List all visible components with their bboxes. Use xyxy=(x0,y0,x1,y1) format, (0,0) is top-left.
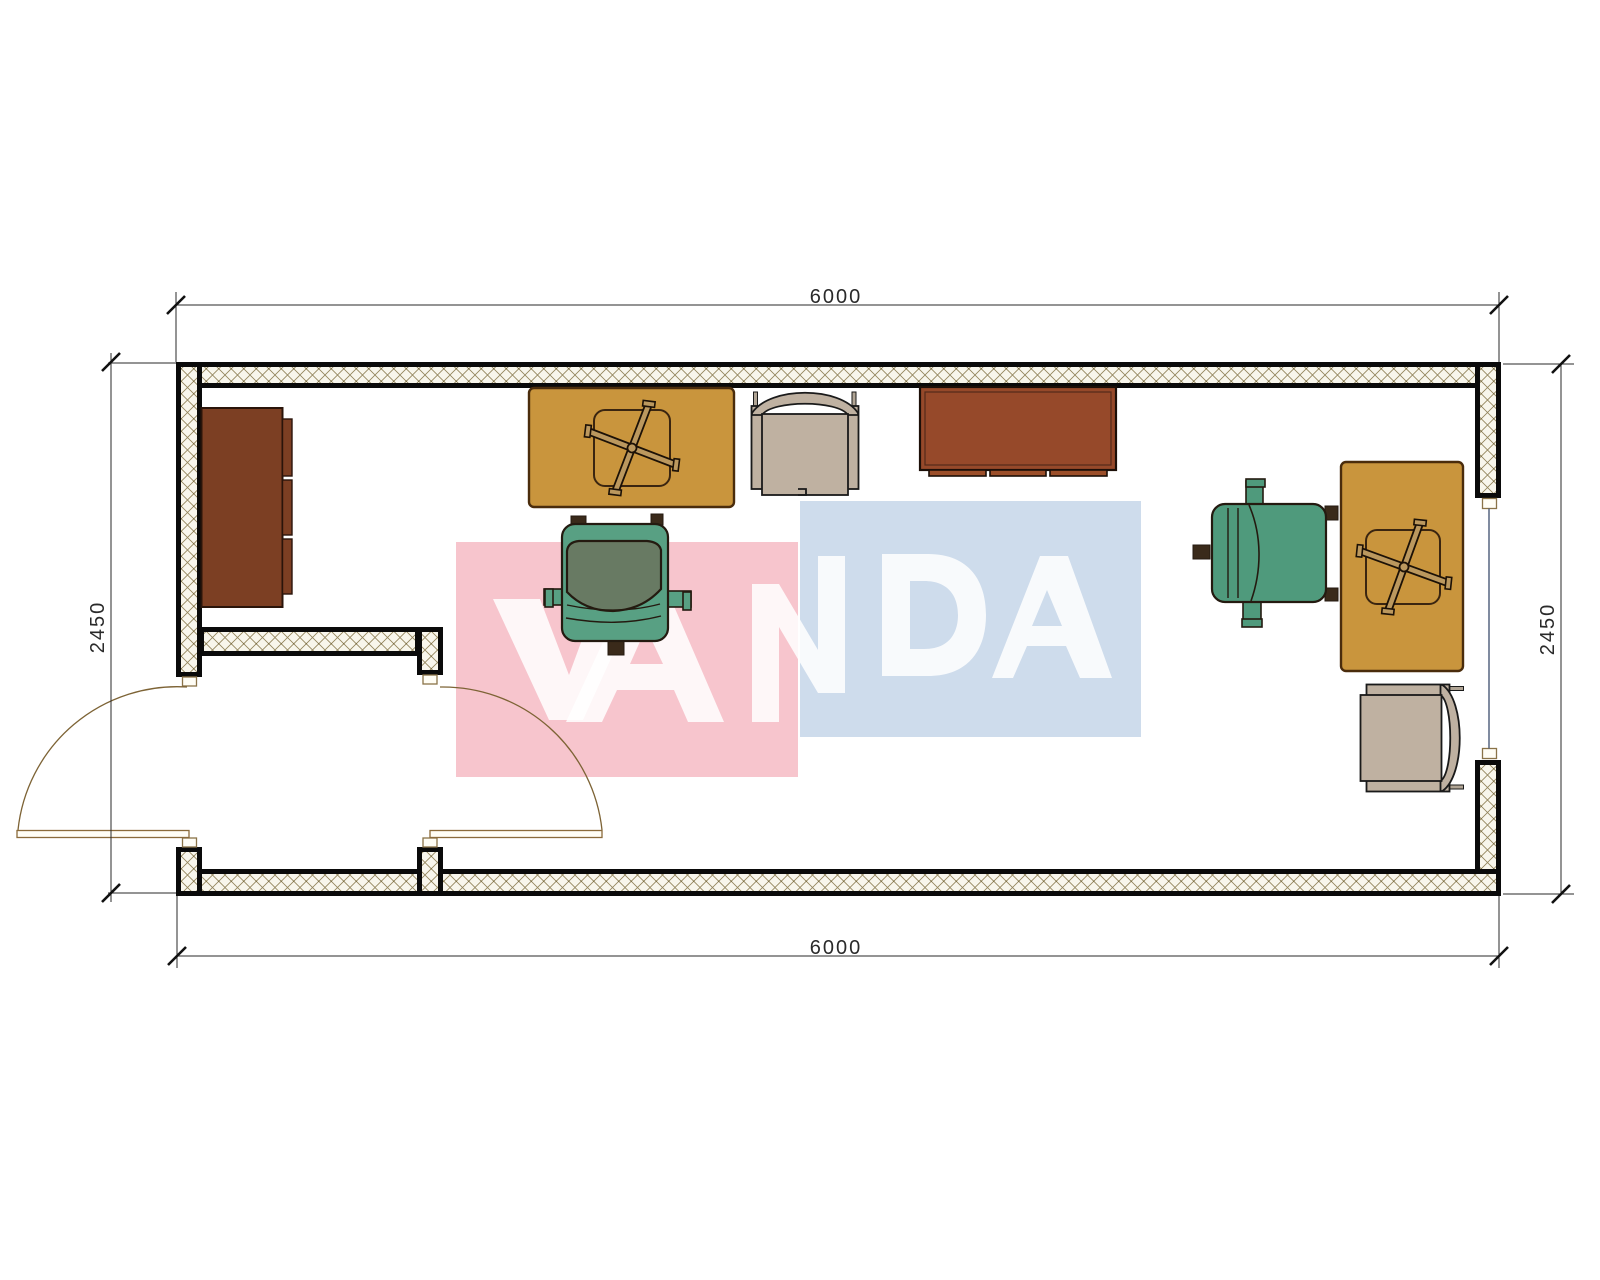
svg-text:2450: 2450 xyxy=(1537,603,1559,656)
svg-text:2450: 2450 xyxy=(87,601,109,654)
svg-text:6000: 6000 xyxy=(810,937,863,959)
svg-text:6000: 6000 xyxy=(810,286,863,308)
